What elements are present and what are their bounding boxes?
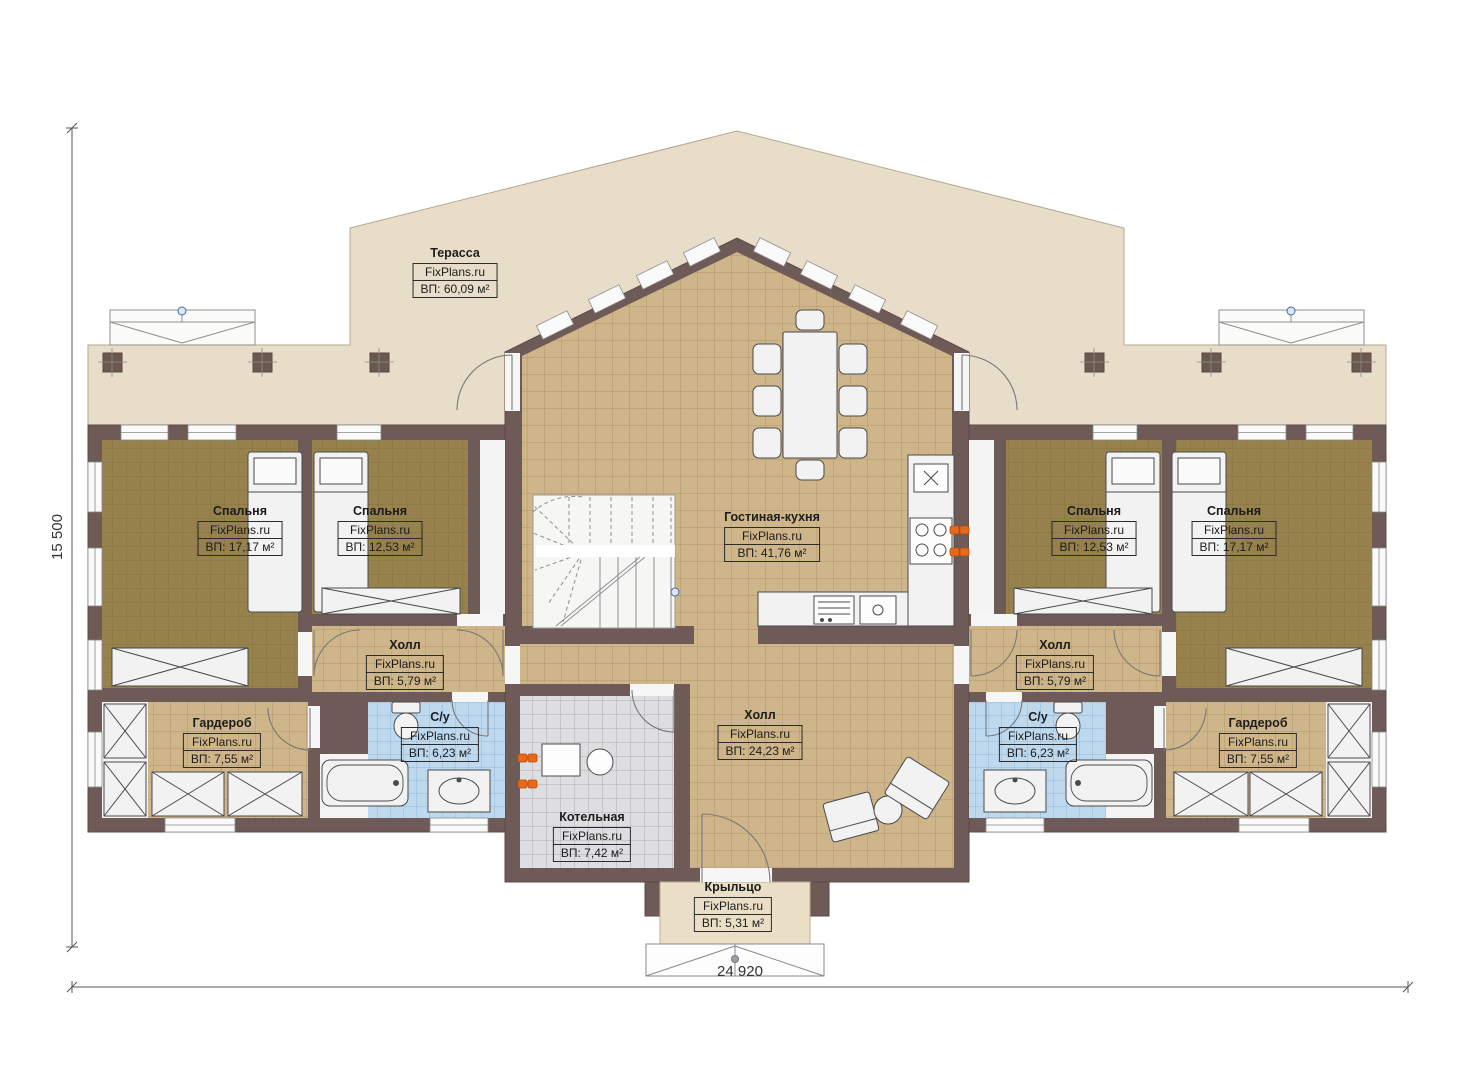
brand-watermark: FixPlans.ru <box>338 521 423 539</box>
room-name: Крыльцо <box>694 880 772 894</box>
room-name: Гардероб <box>183 716 261 730</box>
dining-chair <box>753 428 781 458</box>
dresser <box>1226 648 1362 686</box>
kitchen-sink <box>914 464 948 492</box>
room-area: ВП: 7,55 м² <box>183 750 261 768</box>
floor-plan-page: 15 500 24 920 Терасса FixPlans.ru ВП: 60… <box>0 0 1474 1080</box>
window <box>430 818 488 832</box>
room-label-bedroom-right-2: Спальня FixPlans.ru ВП: 17,17 м² <box>1192 504 1277 556</box>
room-label-wardrobe-right: Гардероб FixPlans.ru ВП: 7,55 м² <box>1219 716 1297 768</box>
wardrobe-cabinet <box>1328 704 1370 758</box>
dishwasher <box>860 596 896 624</box>
window <box>188 425 236 440</box>
room-name: Холл <box>366 638 444 652</box>
door-gap <box>505 646 520 684</box>
wardrobe-cabinet <box>1174 772 1248 816</box>
door-gap <box>630 684 674 696</box>
survey-marker <box>671 588 679 596</box>
room-name: Спальня <box>1192 504 1277 518</box>
brand-watermark: FixPlans.ru <box>401 727 479 745</box>
width-dimension-label: 24 920 <box>717 963 763 980</box>
dining-chair <box>753 344 781 374</box>
room-label-terrace: Терасса FixPlans.ru ВП: 60,09 м² <box>413 246 498 298</box>
window <box>1239 818 1309 832</box>
room-name: С/у <box>999 710 1077 724</box>
door-gap <box>971 614 1017 626</box>
wardrobe-cabinet <box>152 772 224 816</box>
height-dimension-label: 15 500 <box>49 514 66 560</box>
room-label-bedroom-left-1: Спальня FixPlans.ru ВП: 17,17 м² <box>198 504 283 556</box>
dining-chair <box>753 386 781 416</box>
closet-niche <box>480 440 505 614</box>
room-name: Котельная <box>553 810 631 824</box>
brand-watermark: FixPlans.ru <box>718 725 803 743</box>
brand-watermark: FixPlans.ru <box>1052 521 1137 539</box>
wardrobe-cabinet <box>1250 772 1322 816</box>
door-gap <box>1162 632 1176 676</box>
room-label-bath-right: С/у FixPlans.ru ВП: 6,23 м² <box>999 710 1077 762</box>
bathtub <box>322 760 408 806</box>
window <box>88 462 102 512</box>
window <box>1093 425 1137 440</box>
dresser <box>112 648 248 686</box>
stairs <box>533 495 679 628</box>
window <box>165 818 235 832</box>
dining-chair <box>839 386 867 416</box>
room-area: ВП: 17,17 м² <box>1192 538 1277 556</box>
bathtub <box>1066 760 1152 806</box>
room-label-bath-left: С/у FixPlans.ru ВП: 6,23 м² <box>401 710 479 762</box>
oven <box>814 596 854 624</box>
window <box>1372 548 1386 606</box>
brand-watermark: FixPlans.ru <box>366 655 444 673</box>
window <box>1306 425 1353 440</box>
brand-watermark: FixPlans.ru <box>724 527 820 545</box>
door-gap <box>986 692 1022 702</box>
room-name: Спальня <box>338 504 423 518</box>
room-name: Гостиная-кухня <box>724 510 820 524</box>
hall-opening <box>694 626 758 644</box>
room-label-hall-center: Холл FixPlans.ru ВП: 24,23 м² <box>718 708 803 760</box>
room-label-wardrobe-left: Гардероб FixPlans.ru ВП: 7,55 м² <box>183 716 261 768</box>
wardrobe-cabinet <box>228 772 302 816</box>
window <box>88 732 102 787</box>
brand-watermark: FixPlans.ru <box>999 727 1077 745</box>
window <box>1372 462 1386 512</box>
dresser <box>1014 588 1152 614</box>
room-name: Холл <box>718 708 803 722</box>
room-area: ВП: 5,79 м² <box>1016 672 1094 690</box>
survey-marker <box>1287 307 1295 315</box>
window <box>121 425 168 440</box>
room-area: ВП: 12,53 м² <box>1052 538 1137 556</box>
room-area: ВП: 5,79 м² <box>366 672 444 690</box>
room-area: ВП: 12,53 м² <box>338 538 423 556</box>
dining-chair <box>839 428 867 458</box>
room-area: ВП: 17,17 м² <box>198 538 283 556</box>
brand-watermark: FixPlans.ru <box>553 827 631 845</box>
brand-watermark: FixPlans.ru <box>1016 655 1094 673</box>
door-gap <box>452 692 488 702</box>
door-gap <box>298 632 312 676</box>
room-area: ВП: 7,55 м² <box>1219 750 1297 768</box>
room-label-hall-right: Холл FixPlans.ru ВП: 5,79 м² <box>1016 638 1094 690</box>
brand-watermark: FixPlans.ru <box>694 897 772 915</box>
window <box>986 818 1044 832</box>
brand-watermark: FixPlans.ru <box>183 733 261 751</box>
room-label-living-kitchen: Гостиная-кухня FixPlans.ru ВП: 41,76 м² <box>724 510 820 562</box>
dining-chair <box>839 344 867 374</box>
room-name: Холл <box>1016 638 1094 652</box>
room-label-bedroom-right-1: Спальня FixPlans.ru ВП: 12,53 м² <box>1052 504 1137 556</box>
brand-watermark: FixPlans.ru <box>198 521 283 539</box>
room-area: ВП: 24,23 м² <box>718 742 803 760</box>
door-gap <box>954 646 969 684</box>
brand-watermark: FixPlans.ru <box>413 263 498 281</box>
sink <box>984 770 1046 812</box>
window <box>88 640 102 690</box>
wardrobe-cabinet <box>1328 762 1370 816</box>
room-name: Спальня <box>198 504 283 518</box>
survey-marker <box>178 307 186 315</box>
corridor-floor <box>520 644 690 684</box>
window <box>337 425 381 440</box>
room-label-hall-left: Холл FixPlans.ru ВП: 5,79 м² <box>366 638 444 690</box>
room-name: Спальня <box>1052 504 1137 518</box>
room-name: Терасса <box>413 246 498 260</box>
room-label-bedroom-left-2: Спальня FixPlans.ru ВП: 12,53 м² <box>338 504 423 556</box>
room-area: ВП: 60,09 м² <box>413 280 498 298</box>
width-dimension: 24 920 <box>67 963 1413 993</box>
sink <box>428 770 490 812</box>
closet-niche <box>969 440 994 614</box>
dresser <box>322 588 460 614</box>
brand-watermark: FixPlans.ru <box>1192 521 1277 539</box>
brand-watermark: FixPlans.ru <box>1219 733 1297 751</box>
dining-chair <box>796 310 824 330</box>
wardrobe-cabinet <box>104 704 146 758</box>
dining-chair <box>796 460 824 480</box>
room-name: С/у <box>401 710 479 724</box>
room-area: ВП: 6,23 м² <box>401 744 479 762</box>
window <box>1372 640 1386 690</box>
room-area: ВП: 5,31 м² <box>694 914 772 932</box>
window <box>1238 425 1286 440</box>
room-label-boiler: Котельная FixPlans.ru ВП: 7,42 м² <box>553 810 631 862</box>
door-gap <box>457 614 503 626</box>
room-name: Гардероб <box>1219 716 1297 730</box>
dining-table <box>783 332 837 458</box>
window <box>1372 732 1386 787</box>
height-dimension: 15 500 <box>49 123 78 952</box>
room-area: ВП: 6,23 м² <box>999 744 1077 762</box>
wardrobe-cabinet <box>104 762 146 816</box>
window <box>88 548 102 606</box>
room-area: ВП: 41,76 м² <box>724 544 820 562</box>
room-label-porch: Крыльцо FixPlans.ru ВП: 5,31 м² <box>694 880 772 932</box>
stove <box>910 518 952 564</box>
boiler-unit <box>542 744 613 776</box>
room-area: ВП: 7,42 м² <box>553 844 631 862</box>
